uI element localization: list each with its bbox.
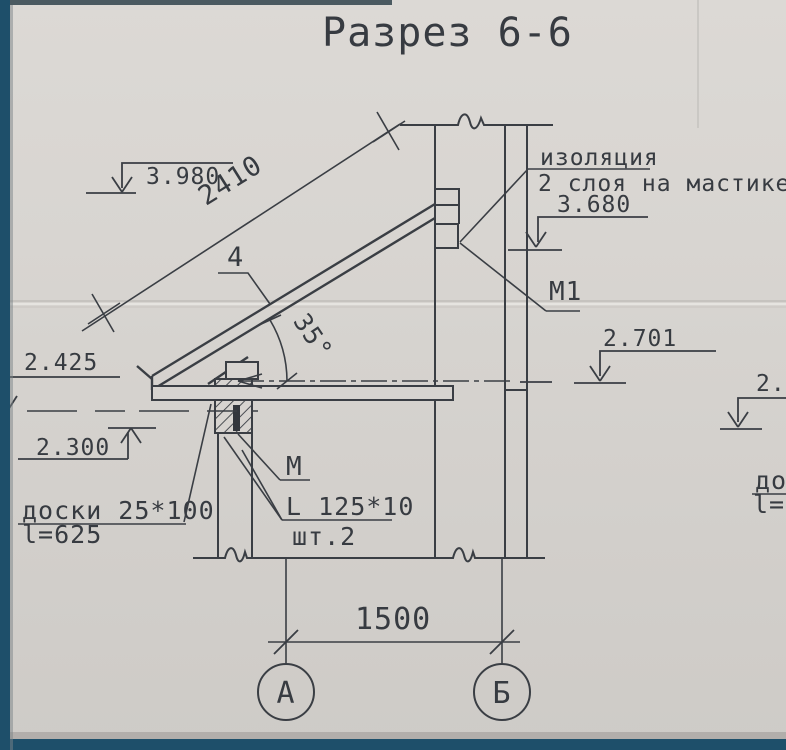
elev-2300-label: 2.300 — [36, 435, 110, 461]
elev-2425-label: 2.425 — [24, 350, 98, 376]
insulation-line1: изоляция — [540, 145, 659, 171]
elev-3980-label: 3.980 — [146, 164, 220, 190]
span-dimension-label: 1500 — [355, 602, 431, 637]
scanner-bottom-edge — [0, 739, 786, 750]
paper-top-edge — [10, 0, 392, 5]
m1-label: М1 — [549, 277, 582, 307]
axis-b-label: Б — [492, 676, 511, 711]
angle-annotation: 35° — [238, 308, 512, 389]
elev-2701 — [520, 351, 716, 383]
eave-assembly — [152, 362, 453, 433]
paper-bottom-shadow — [0, 732, 786, 740]
horizontal-board — [152, 386, 453, 400]
right-edge-length-label: l=6 — [753, 490, 786, 519]
scanned-drawing-page: 2410 4 35° 3.980 2.425 2.300 3.680 — [0, 0, 786, 750]
boards-callout: доски 25*100 l=625 — [18, 404, 215, 549]
elev-2425 — [0, 377, 120, 410]
angle-value-label: 35° — [288, 308, 339, 364]
bottom-break-line — [193, 548, 545, 561]
anchor-bolt — [233, 405, 240, 431]
elev-3680 — [508, 217, 648, 250]
angle-steel-qty-label: шт.2 — [292, 522, 356, 551]
elev-2701-label: 2.701 — [603, 326, 677, 352]
part-number-label: 4 — [227, 242, 244, 273]
angle-steel-label: L 125*10 — [286, 492, 414, 521]
m-callout: М — [238, 434, 310, 482]
axis-a-label: А — [276, 676, 295, 711]
insulation-line2: 2 слоя на мастике — [538, 171, 786, 197]
dimension-rafter-2410 — [82, 112, 405, 332]
elev-right-edge — [720, 398, 786, 429]
top-break-line — [400, 114, 553, 128]
scan-edges — [0, 0, 786, 750]
part-number-4: 4 — [218, 242, 270, 304]
m-label: М — [286, 452, 303, 482]
drawing-title: Разрез 6-6 — [322, 10, 573, 56]
boards-length-label: l=625 — [22, 520, 102, 549]
section-drawing-svg: 2410 4 35° 3.980 2.425 2.300 3.680 — [0, 0, 786, 750]
right-edge-callout: до l=6 — [752, 466, 786, 519]
scanner-left-edge — [0, 0, 10, 750]
axes-dimension: 1500 А Б — [258, 558, 530, 720]
m1-anchor-block — [435, 189, 459, 248]
insulation-callout: изоляция 2 слоя на мастике — [460, 145, 786, 242]
elev-right-edge-label: 2.4 — [756, 371, 786, 397]
